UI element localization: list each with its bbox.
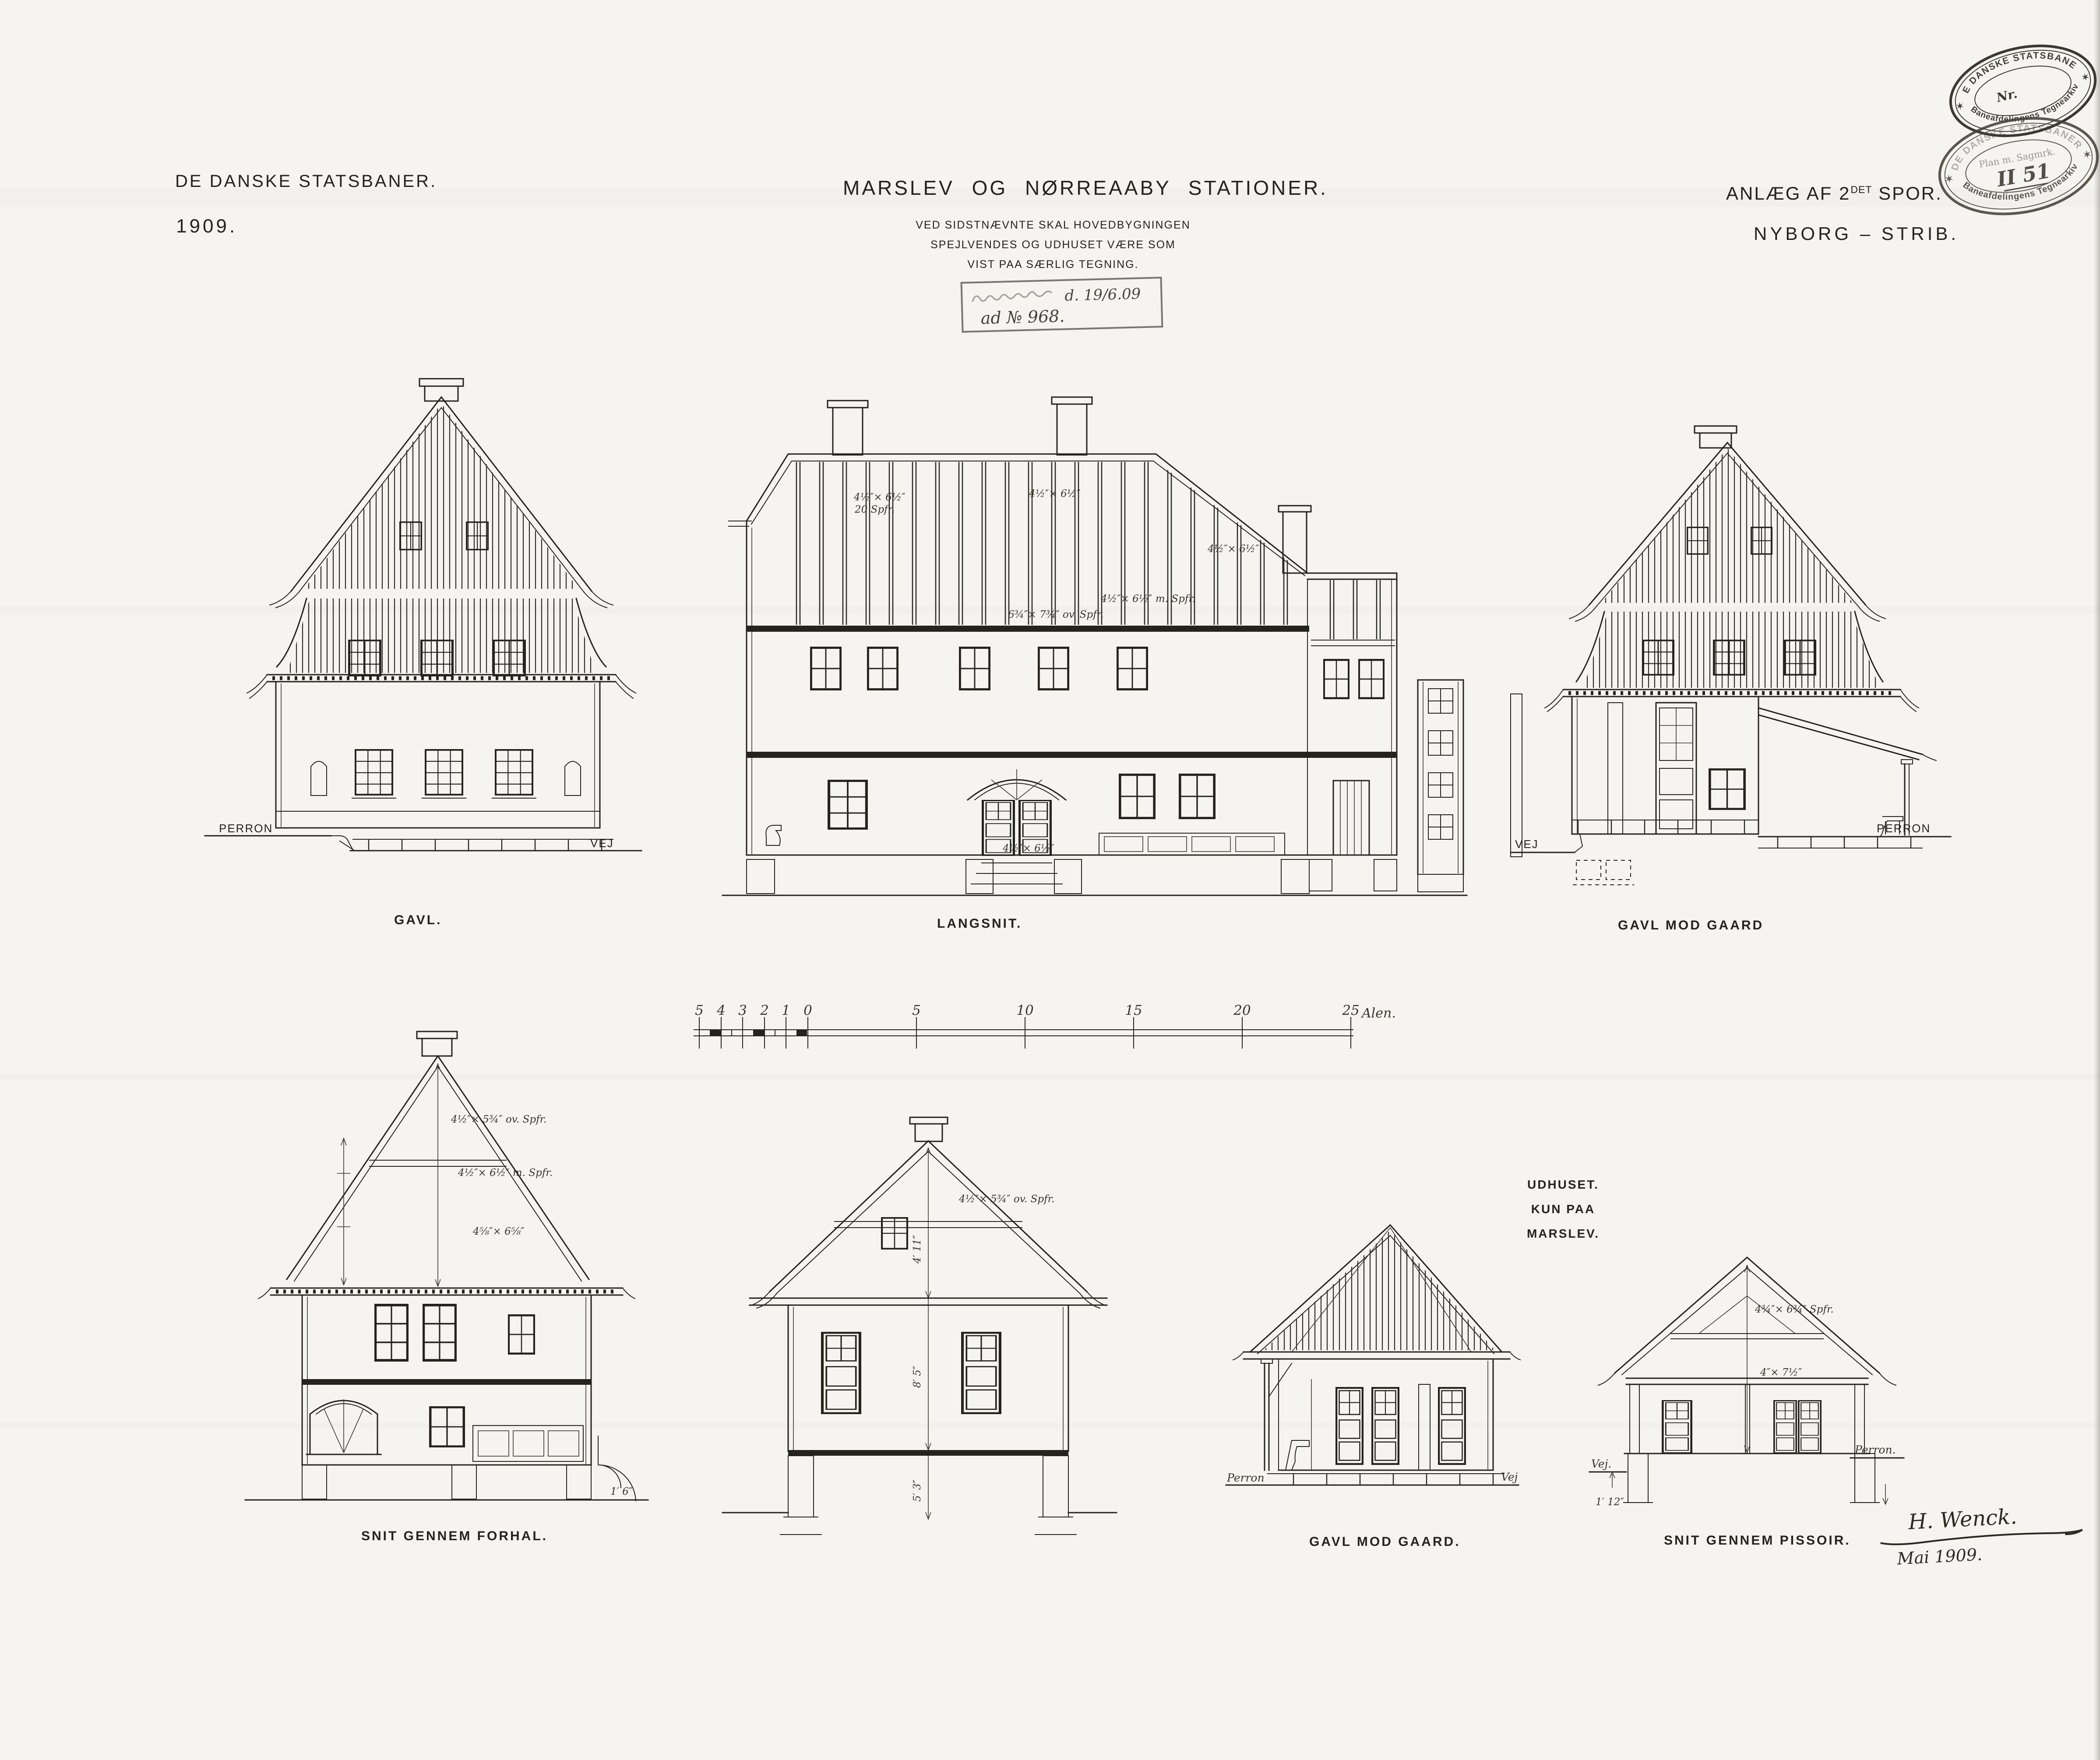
figure-tvaersnit: 4½″× 5¾″ ov. Spfr. 4′ 11″ 8′ 5″ 5′ 3″	[722, 1116, 1117, 1559]
scale-tick: 10	[1016, 1003, 1033, 1018]
dim-annotation: 5′ 3″	[912, 1479, 923, 1502]
udhus-gavl-drawing: Perron Vej	[1226, 1213, 1519, 1515]
caption-gavl: GAVL.	[394, 913, 442, 928]
snit-pissoir-drawing: Perron. Vej. 1′ 12″ 4¾″× 6¾″ Spfr. 4″× 7…	[1589, 1248, 1905, 1537]
udhus-heading-line1: UDHUSET.	[1497, 1172, 1629, 1197]
stamp-nr-label: Nr.	[1994, 86, 2019, 105]
scale-tick: 3	[738, 1003, 747, 1018]
dim-annotation: 4⅝″× 6⅝″	[472, 1226, 525, 1237]
sheet-title: MARSLEV OG NØRREAABY STATIONER.	[843, 176, 1328, 200]
project-prefix: ANLÆG AF 2	[1726, 183, 1850, 204]
figure-scale-bar: 5 4 3 2 1 0 5 10 15 20 25 Alen.	[687, 1003, 1414, 1055]
scale-tick: 0	[803, 1003, 812, 1018]
dim-annotation: 4½″× 6½″ m. Spfr.	[1100, 593, 1195, 605]
scale-tick: 4	[716, 1003, 726, 1018]
scale-tick: 5	[695, 1003, 704, 1018]
figure-snit-pissoir: Perron. Vej. 1′ 12″ 4¾″× 6¾″ Spfr. 4″× 7…	[1589, 1248, 1905, 1537]
subtitle-line-2: SPEJLVENDES OG UDHUSET VÆRE SOM	[911, 235, 1195, 255]
approval-stamp: d. 19/6.09 ad № 968.	[961, 277, 1163, 333]
org-title: DE DANSKE STATSBANER.	[175, 172, 437, 191]
udhus-vej-label: Vej	[1501, 1471, 1518, 1483]
scale-tick: 15	[1125, 1003, 1142, 1018]
caption-snit-forhal: SNIT GENNEM FORHAL.	[361, 1529, 548, 1544]
scale-tick: 5	[912, 1003, 921, 1018]
dim-annotation: 4½″× 5¾″ ov. Spfr.	[451, 1114, 546, 1125]
stamp-star-left: ✶	[1943, 172, 1955, 186]
caption-snit-pissoir: SNIT GENNEM PISSOIR.	[1664, 1533, 1851, 1548]
dim-annotation: 4½″× 6½″ m. Spfr.	[458, 1167, 553, 1179]
gmg-perron-label: PERRON	[1877, 822, 1931, 835]
caption-gavl-mod-gaard: GAVL MOD GAARD	[1618, 918, 1764, 933]
figure-gavl: PERRON VEJ	[201, 374, 644, 858]
langsnit-drawing: 4½″× 6½″ 20 Spfr. 4½″× 6½″ 4½″× 6½″ 6¾″×…	[722, 396, 1467, 922]
route-title: NYBORG – STRIB.	[1754, 223, 1959, 244]
drawing-sheet: DE DANSKE STATSBANER. 1909. MARSLEV OG N…	[0, 0, 2100, 1760]
dim-annotation: 4¾″× 6¾″ Spfr.	[1755, 1304, 1834, 1315]
pissoir-dim-label: 1′ 12″	[1596, 1496, 1624, 1508]
dim-annotation: 4½″× 6½″	[853, 492, 906, 503]
pissoir-vej-label: Vej.	[1591, 1457, 1611, 1470]
gavl-drawing: PERRON VEJ	[201, 374, 644, 858]
dim-annotation: 4½″× 5¾″ ov. Spfr.	[958, 1193, 1054, 1205]
project-suffix: SPOR.	[1872, 183, 1942, 204]
udhus-heading: UDHUSET. KUN PAA MARSLEV.	[1497, 1172, 1629, 1246]
org-year: 1909.	[176, 215, 237, 237]
figure-gavl-mod-gaard: PERRON VEJ	[1511, 422, 1953, 904]
dim-annotation: 6¾″× 7¾″ ov. Spfr.	[1008, 609, 1103, 620]
project-title: ANLÆG AF 2DET SPOR.	[1726, 183, 1942, 204]
sheet-subtitle: VED SIDSTNÆVNTE SKAL HOVEDBYGNINGEN SPEJ…	[911, 215, 1195, 275]
scale-tick: 25	[1342, 1003, 1359, 1018]
subtitle-line-1: VED SIDSTNÆVNTE SKAL HOVEDBYGNINGEN	[911, 215, 1195, 235]
stamp-star-left: ✶	[1955, 100, 1966, 113]
dim-annotation: 4½″× 6½″	[1207, 543, 1259, 555]
dim-annotation: 4′ 11″	[912, 1235, 923, 1264]
tvaersnit-drawing: 4½″× 5¾″ ov. Spfr. 4′ 11″ 8′ 5″ 5′ 3″	[722, 1116, 1117, 1559]
caption-udhus-gavl: GAVL MOD GAARD.	[1309, 1535, 1461, 1549]
scan-edge	[2094, 0, 2100, 1760]
figure-snit-forhal: 4½″× 5¾″ ov. Spfr. 4½″× 6½″ m. Spfr. 4⅝″…	[245, 1029, 648, 1513]
scale-tick: 2	[760, 1003, 769, 1018]
figure-udhus-gavl: Perron Vej	[1226, 1213, 1519, 1515]
gavl-mod-gaard-drawing: PERRON VEJ	[1511, 422, 1953, 904]
approval-number: ad № 968.	[980, 304, 1154, 328]
udhus-perron-label: Perron	[1226, 1471, 1265, 1484]
gavl-vej-label: VEJ	[590, 837, 614, 850]
dim-annotation: 8′ 5″	[912, 1366, 923, 1388]
dim-annotation: 4″× 7½″	[1760, 1367, 1802, 1378]
scale-tick: 20	[1233, 1003, 1251, 1018]
subtitle-line-3: VIST PAA SÆRLIG TEGNING.	[911, 255, 1195, 275]
project-ordinal: DET	[1850, 184, 1872, 195]
snit-forhal-drawing: 4½″× 5¾″ ov. Spfr. 4½″× 6½″ m. Spfr. 4⅝″…	[245, 1029, 648, 1513]
figure-langsnit: 4½″× 6½″ 20 Spfr. 4½″× 6½″ 4½″× 6½″ 6¾″×…	[722, 396, 1467, 922]
gmg-vej-label: VEJ	[1515, 838, 1539, 851]
signature-block: H. Wenck. Mai 1909.	[1877, 1501, 2090, 1570]
approval-date: d. 19/6.09	[1064, 285, 1141, 305]
caption-langsnit: LANGSNIT.	[937, 916, 1022, 931]
dim-annotation: 4½″× 6½″	[1002, 843, 1054, 854]
dim-annotation: 4½″× 6½″	[1029, 488, 1081, 500]
scale-tick: 1	[782, 1003, 790, 1018]
dim-annotation: 20 Spfr.	[854, 504, 895, 515]
scale-bar: 5 4 3 2 1 0 5 10 15 20 25 Alen.	[687, 1003, 1414, 1055]
udhus-heading-line2: KUN PAA MARSLEV.	[1497, 1197, 1629, 1246]
gavl-perron-label: PERRON	[219, 822, 273, 835]
dim-annotation: 1′ 6″	[610, 1486, 633, 1497]
faded-handwriting	[969, 285, 1060, 307]
scale-unit: Alen.	[1360, 1006, 1396, 1021]
